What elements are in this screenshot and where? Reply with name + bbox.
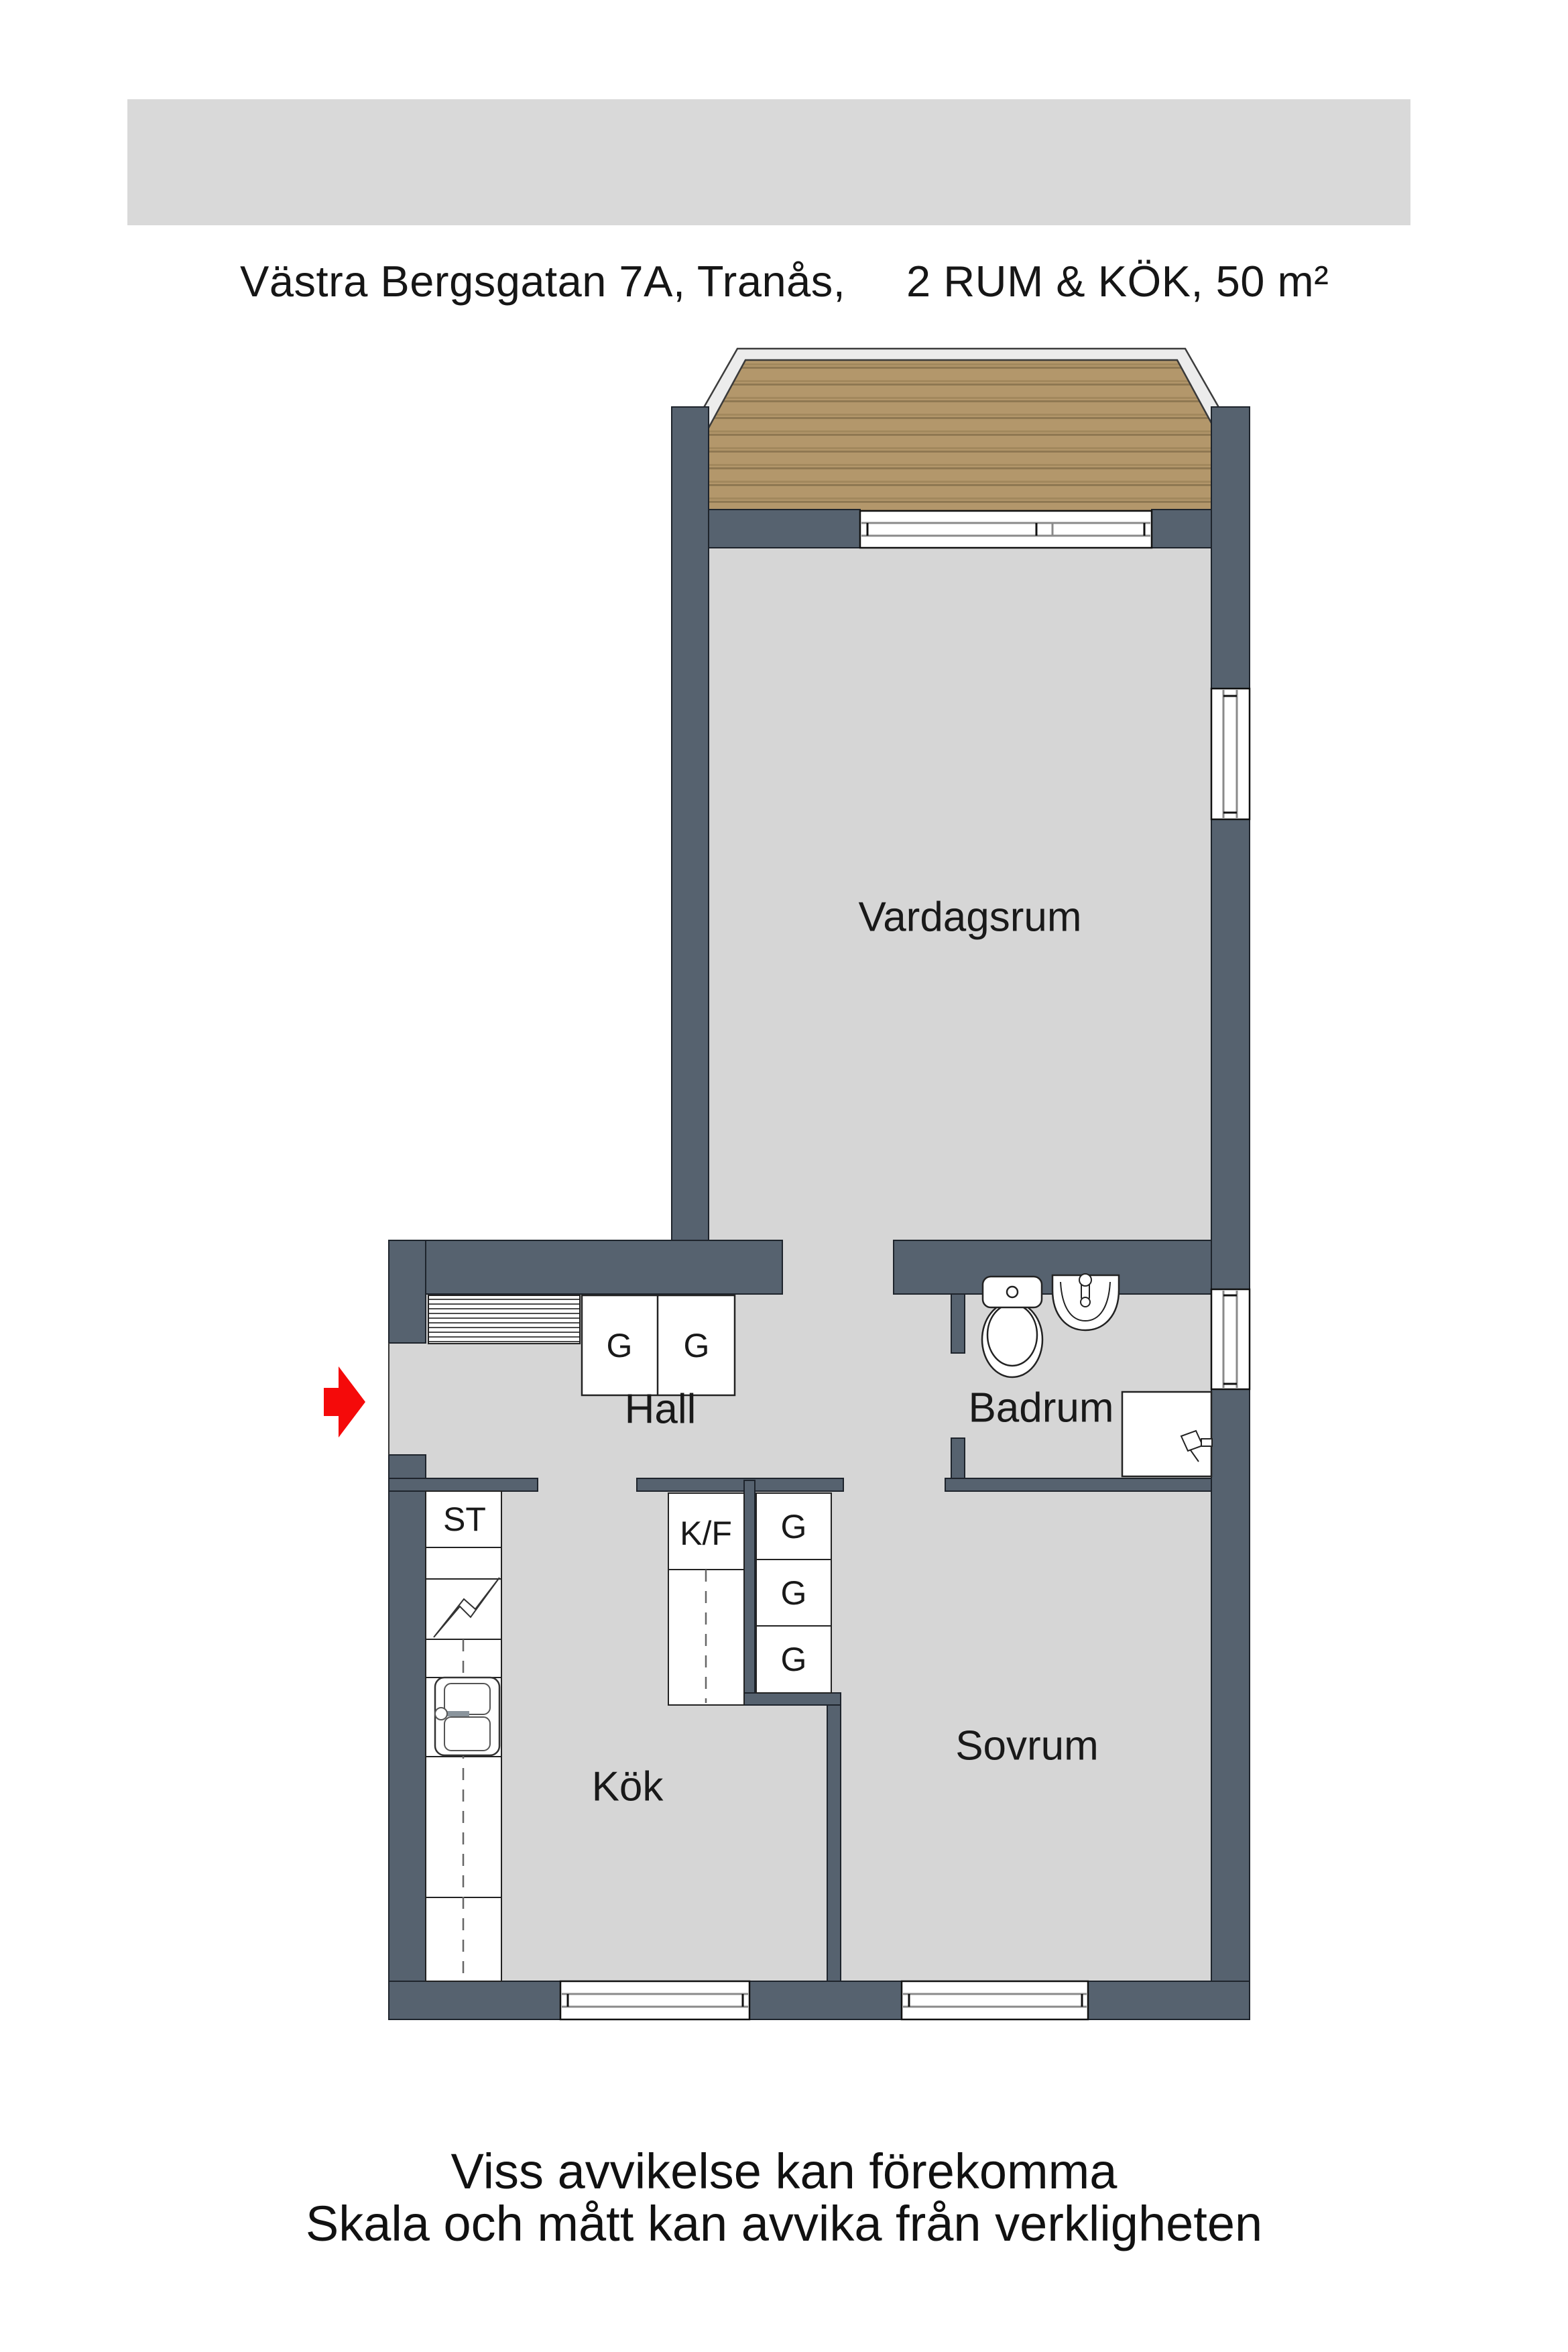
window-livingroom-right bbox=[1211, 689, 1250, 819]
window-kitchen-bottom bbox=[560, 1981, 749, 2019]
balcony bbox=[697, 349, 1225, 511]
label-bedroom: Sovrum bbox=[955, 1722, 1099, 1770]
label-wardrobe-bedroom-2: G bbox=[781, 1574, 807, 1612]
balcony-wood-deck bbox=[708, 360, 1215, 511]
wall-right-lower bbox=[1211, 1389, 1250, 2019]
wall-band-kitchen bbox=[389, 1478, 538, 1491]
hall-wardrobes bbox=[582, 1295, 735, 1395]
wall-left-above-entry bbox=[389, 1240, 426, 1343]
window-bathroom-right bbox=[1211, 1289, 1250, 1389]
wall-kitchen-bedroom-jog bbox=[744, 1693, 841, 1705]
wall-top-left-of-window bbox=[709, 510, 860, 548]
wall-right-upper bbox=[1211, 407, 1250, 689]
wall-kitchen-bedroom-lower bbox=[827, 1705, 841, 1981]
wall-bottom-right bbox=[1088, 1981, 1250, 2019]
wall-right-mid bbox=[1211, 819, 1250, 1289]
wall-bathroom-left-lower bbox=[951, 1438, 965, 1478]
wall-top-right-of-window bbox=[1152, 510, 1211, 548]
label-wardrobe-bedroom-3: G bbox=[781, 1640, 807, 1679]
label-wardrobe-hall-1: G bbox=[607, 1326, 633, 1365]
wall-kitchen-bedroom-upper bbox=[744, 1480, 755, 1705]
label-wardrobe-hall-2: G bbox=[684, 1326, 710, 1365]
floorplan-drawing bbox=[0, 0, 1568, 2352]
shower-icon bbox=[1122, 1392, 1212, 1476]
window-bedroom-bottom bbox=[902, 1981, 1088, 2019]
wall-band-middle bbox=[637, 1478, 843, 1491]
wall-living-left bbox=[672, 407, 709, 1294]
wall-left-below-entry bbox=[389, 1455, 426, 1981]
label-bathroom: Badrum bbox=[968, 1385, 1113, 1432]
floor-entry-recess bbox=[389, 1343, 426, 1455]
wall-bathroom-left-upper bbox=[951, 1294, 965, 1353]
toilet-icon bbox=[982, 1277, 1042, 1377]
wall-bottom-middle bbox=[749, 1981, 902, 2019]
label-fridge-freezer: K/F bbox=[680, 1514, 732, 1553]
window-balcony bbox=[860, 511, 1152, 548]
label-kitchen: Kök bbox=[592, 1763, 664, 1811]
disclaimer-line-2: Skala och mått kan avvika från verklighe… bbox=[0, 2195, 1568, 2252]
wall-hall-top bbox=[389, 1240, 782, 1294]
floorplan-page: Västra Bergsgatan 7A, Tranås, 2 RUM & KÖ… bbox=[0, 0, 1568, 2352]
entrance-arrow-icon bbox=[324, 1366, 365, 1437]
disclaimer-line-1: Viss avvikelse kan förekomma bbox=[0, 2143, 1568, 2200]
wall-bottom-left bbox=[389, 1981, 560, 2019]
kitchen-sink-icon bbox=[435, 1678, 499, 1755]
label-hall: Hall bbox=[625, 1386, 697, 1433]
hall-vent-icon bbox=[428, 1295, 580, 1344]
wall-band-bathroom-bottom bbox=[945, 1478, 1211, 1491]
label-closet: ST bbox=[443, 1500, 486, 1539]
label-wardrobe-bedroom-1: G bbox=[781, 1507, 807, 1546]
kitchen-counter bbox=[426, 1491, 501, 1981]
label-livingroom: Vardagsrum bbox=[858, 894, 1081, 941]
